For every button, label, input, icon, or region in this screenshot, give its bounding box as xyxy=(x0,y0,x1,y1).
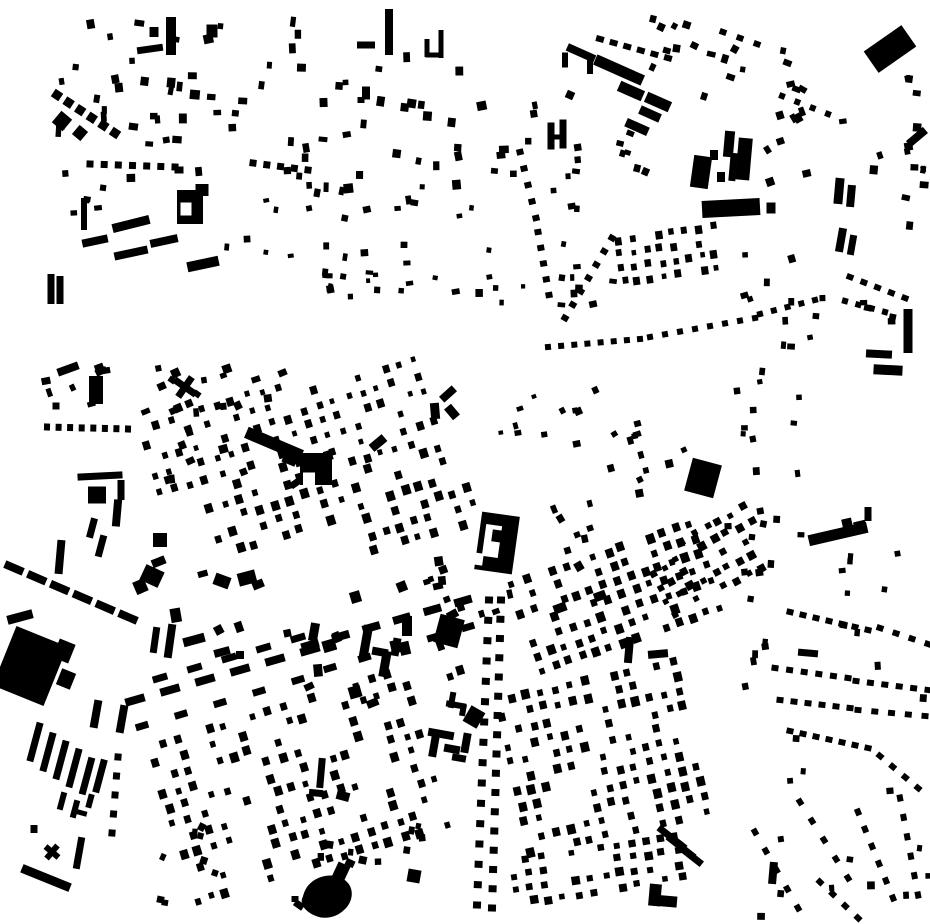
figure-ground-map xyxy=(0,0,930,924)
map-canvas xyxy=(0,0,930,924)
